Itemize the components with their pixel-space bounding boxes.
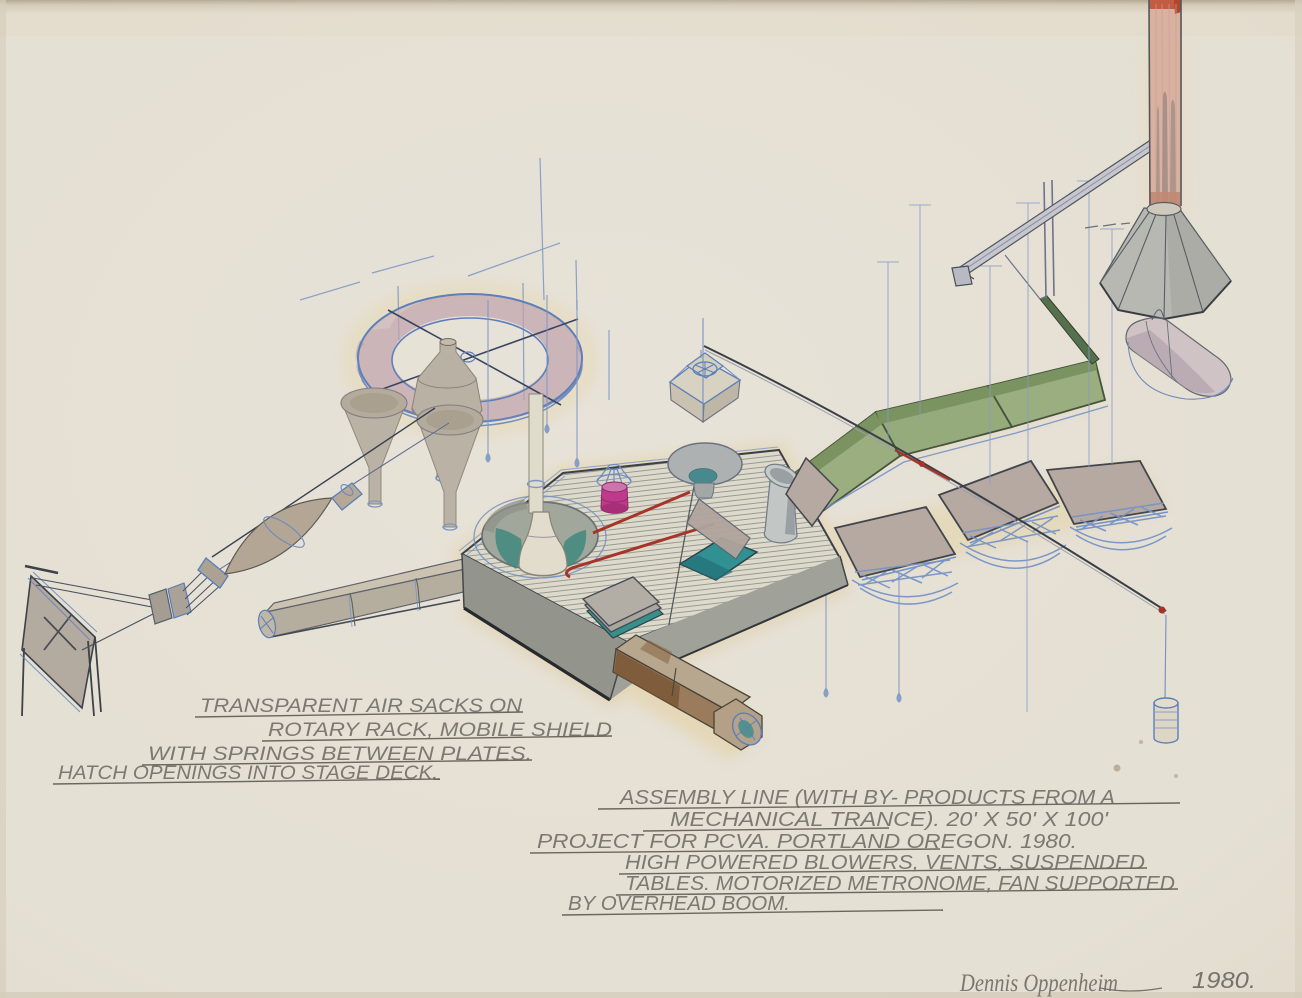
svg-text:Dennis Oppenheim: Dennis Oppenheim xyxy=(959,970,1118,997)
svg-text:BY OVERHEAD BOOM.: BY OVERHEAD BOOM. xyxy=(568,893,790,915)
svg-text:1980.: 1980. xyxy=(1192,967,1256,993)
svg-text:MECHANICAL TRANCE). 20' X 5: MECHANICAL TRANCE). 20' X 50' X 100' xyxy=(670,809,1109,831)
